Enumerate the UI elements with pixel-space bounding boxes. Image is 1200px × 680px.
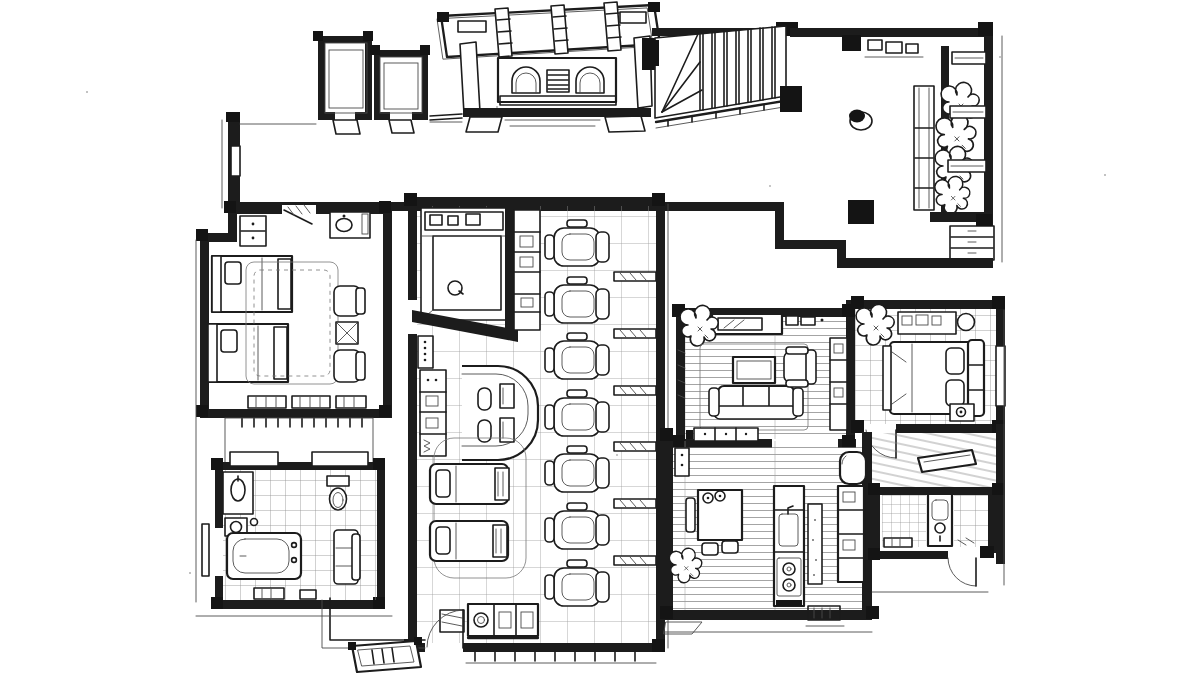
dining-chair xyxy=(702,543,718,555)
kitchen-dining xyxy=(660,428,879,634)
canopy-skylight xyxy=(458,21,486,32)
sofa xyxy=(709,386,803,419)
massage-table-2 xyxy=(430,521,508,561)
dining-table xyxy=(698,490,742,540)
canopy-skylight xyxy=(620,12,646,23)
stool xyxy=(478,388,491,410)
newel-post xyxy=(780,86,802,112)
bathroom-door xyxy=(202,524,209,576)
gallery-shelf xyxy=(952,52,986,64)
monitor xyxy=(500,384,514,408)
corridor-end-niche xyxy=(231,146,240,176)
low-bench xyxy=(248,396,366,408)
storage-bench xyxy=(468,604,538,638)
bathroom-left xyxy=(202,452,385,609)
vanity-dresser xyxy=(898,312,956,334)
tall-cabinet xyxy=(838,486,864,582)
arched-door-right xyxy=(576,67,604,93)
shower-drain xyxy=(448,281,462,295)
floor-mat xyxy=(440,610,464,632)
gallery-shelf xyxy=(948,160,986,172)
living-room xyxy=(672,300,856,448)
stool xyxy=(478,420,491,442)
glass-display-case xyxy=(914,86,934,210)
corner-column xyxy=(842,35,861,51)
refrigerator xyxy=(840,452,866,484)
supply-cabinet xyxy=(514,210,540,330)
bath-mat xyxy=(884,538,912,547)
media-item xyxy=(801,317,815,325)
massage-table-1 xyxy=(430,464,509,504)
coat-locker xyxy=(675,448,689,476)
bath-bench xyxy=(334,530,360,584)
gallery-shelf xyxy=(950,106,986,118)
lounge-chair xyxy=(334,286,365,316)
wall-unit xyxy=(830,338,847,430)
kitchen-island xyxy=(774,486,804,606)
counter-strip xyxy=(808,504,822,584)
shower-shelf xyxy=(425,212,503,230)
pillow xyxy=(946,380,964,406)
pillow xyxy=(946,348,964,374)
washbasin-vanity xyxy=(330,212,370,238)
corner-column xyxy=(978,22,993,36)
side-table xyxy=(336,322,358,344)
dining-chair xyxy=(722,541,738,553)
washbasin-unit xyxy=(928,494,952,546)
armchair xyxy=(784,347,816,387)
coffee-table xyxy=(733,357,775,383)
single-bed-2 xyxy=(208,324,288,382)
vestibule-threshold xyxy=(605,116,645,132)
drawing-page: Hand-drawn ink floor plan xyxy=(0,0,1200,680)
drawer-chest xyxy=(950,226,994,260)
dining-bench xyxy=(686,498,695,532)
single-bed-1 xyxy=(212,256,292,312)
dresser xyxy=(240,216,266,246)
media-item xyxy=(786,316,798,325)
vestibule-threshold xyxy=(466,117,502,132)
switch-panel xyxy=(418,336,433,368)
vanity-stool xyxy=(958,314,975,331)
equipment-cabinet xyxy=(420,370,446,456)
floorplan-canvas: Hand-drawn ink floor plan xyxy=(0,0,1200,680)
corner-column xyxy=(848,200,874,224)
closet-threshold xyxy=(389,120,414,133)
closet-threshold xyxy=(333,120,360,134)
nightstand-lamp xyxy=(950,404,974,421)
sideboard xyxy=(686,428,758,441)
louver-panel xyxy=(547,70,569,92)
lounge-chair xyxy=(334,350,365,382)
bath-tile-floor xyxy=(954,495,988,547)
arched-door-left xyxy=(512,67,540,93)
newel-post xyxy=(646,40,659,66)
bathtub xyxy=(227,533,301,579)
